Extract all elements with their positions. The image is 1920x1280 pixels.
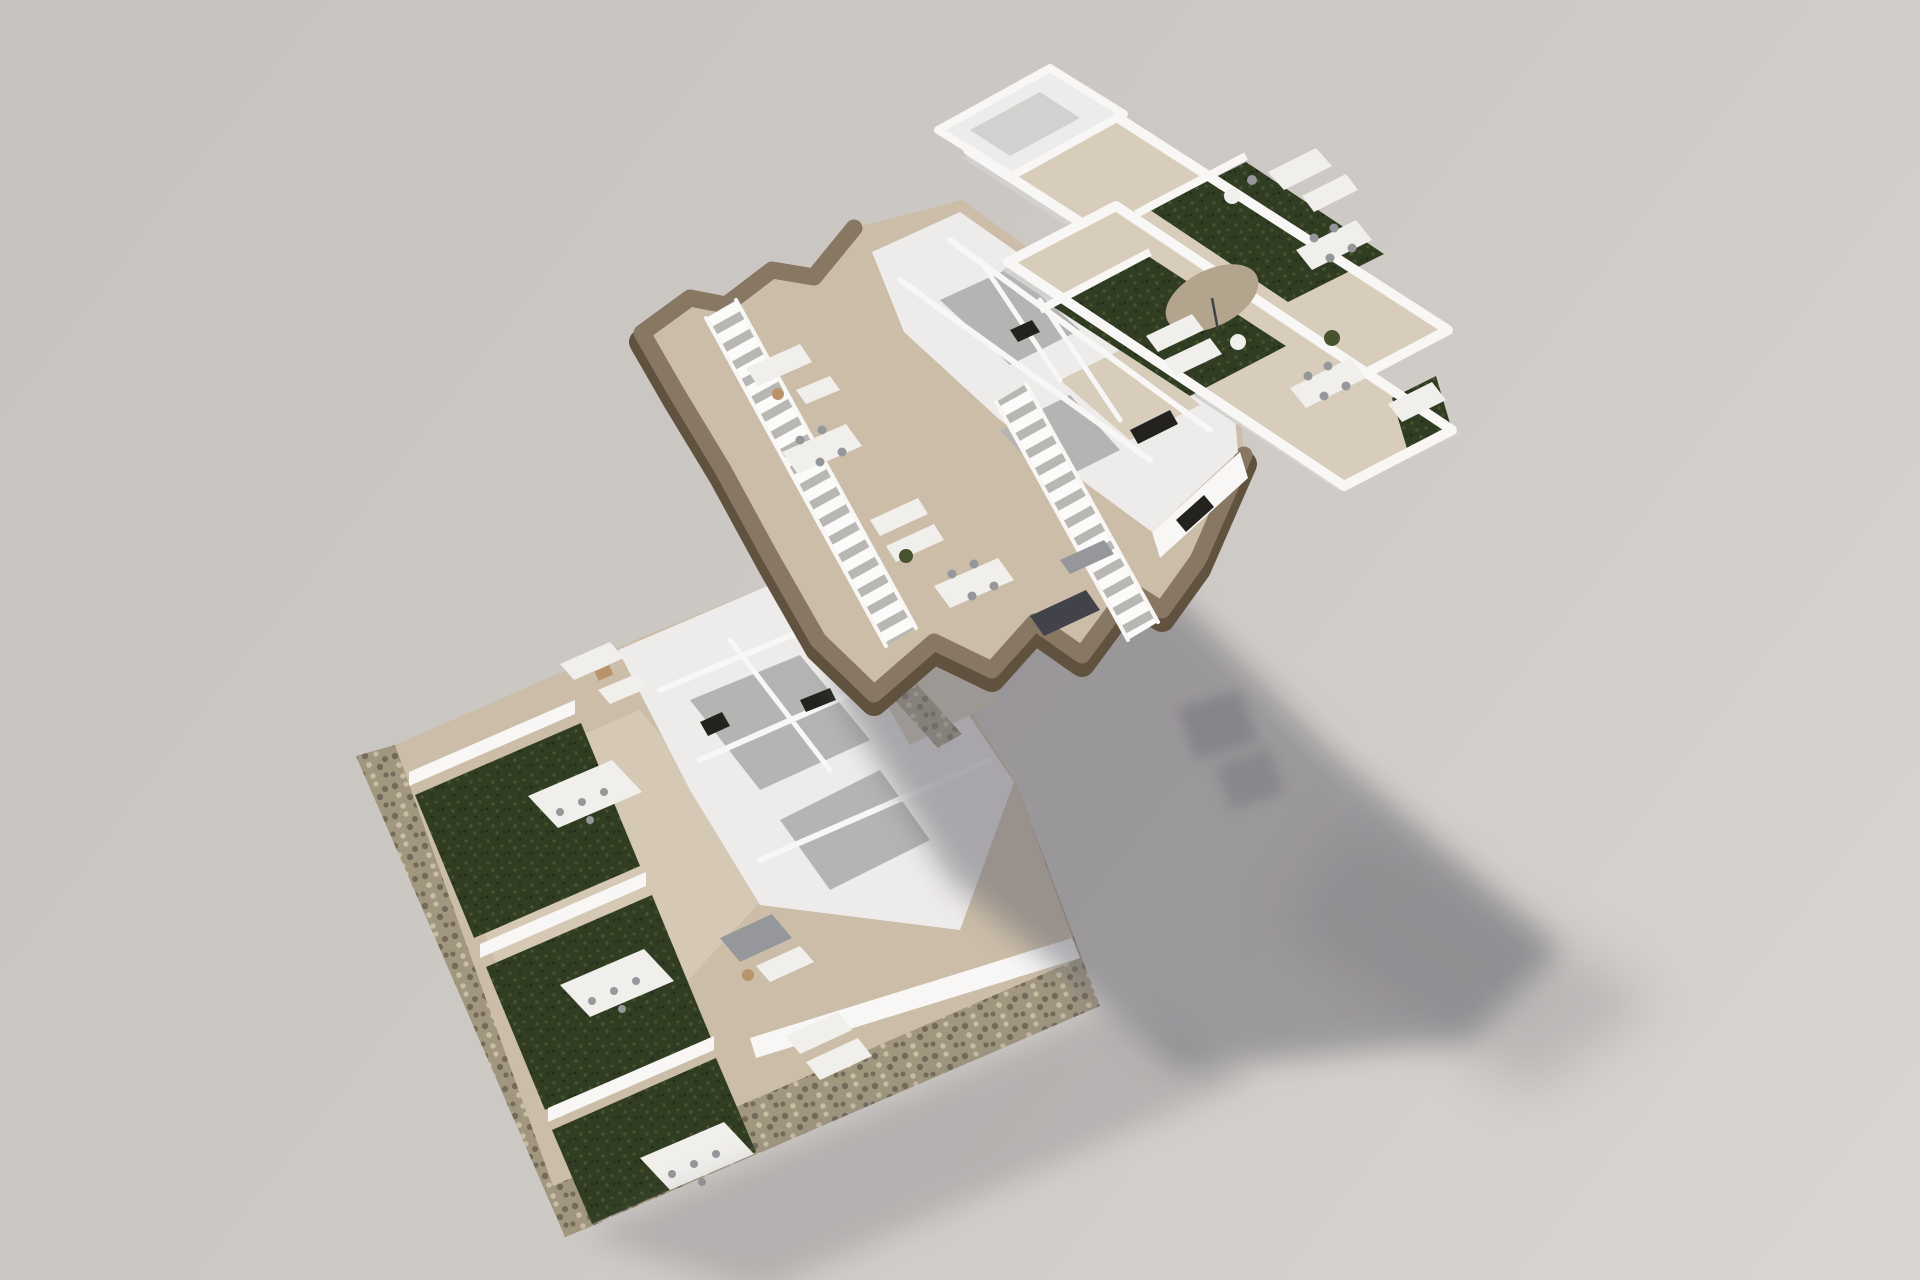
- exploded-floorplan-render: [0, 0, 1920, 1280]
- render-canvas: [0, 0, 1920, 1280]
- potted-plant: [899, 549, 913, 563]
- potted-plant: [1324, 330, 1340, 346]
